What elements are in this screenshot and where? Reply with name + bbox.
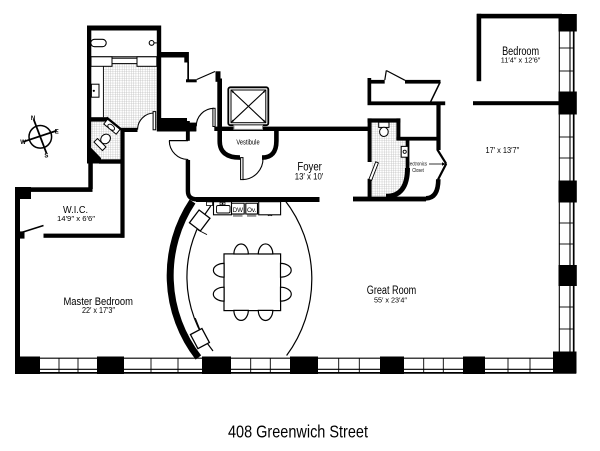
svg-text:22′ x 17′3″: 22′ x 17′3″ [82,306,115,315]
svg-text:408 Greenwich Street: 408 Greenwich Street [228,422,368,442]
svg-text:E: E [55,129,59,135]
svg-text:Vestibule: Vestibule [236,138,259,147]
svg-text:N: N [31,116,35,122]
svg-text:Ov.: Ov. [247,207,257,214]
svg-text:11′4″ x 12′6″: 11′4″ x 12′6″ [501,56,541,65]
svg-text:DW: DW [233,207,244,214]
svg-text:13′ x 10′: 13′ x 10′ [295,171,324,181]
svg-text:S: S [44,153,48,159]
svg-text:Closet: Closet [412,168,424,174]
svg-text:Electronics: Electronics [406,161,427,167]
svg-text:17′ x 13′7″: 17′ x 13′7″ [486,146,520,155]
svg-text:14′9″ x 6′6″: 14′9″ x 6′6″ [57,214,95,223]
svg-text:55′ x 23′4″: 55′ x 23′4″ [374,295,407,304]
svg-text:W: W [20,140,26,146]
